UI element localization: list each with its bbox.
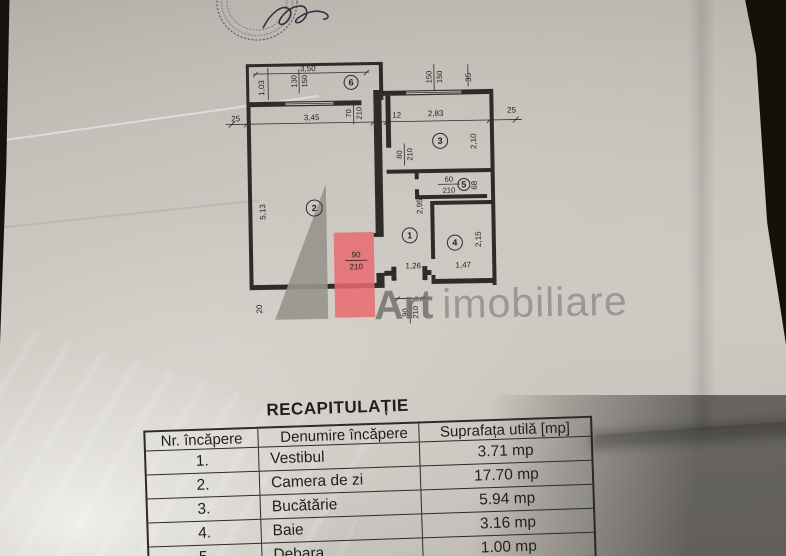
round-stamp-icon xyxy=(217,0,297,40)
photo-of-floor-plan-document: 3,50 1,03 130 150 70 210 25 3,45 12 2,83… xyxy=(0,0,786,556)
svg-text:90: 90 xyxy=(352,250,362,259)
watermark-brand-bold: Art xyxy=(374,281,434,328)
svg-text:210: 210 xyxy=(350,262,364,271)
label-kitchen-window-size: 150 150 xyxy=(424,64,444,90)
dim-wall-left: 25 xyxy=(231,114,241,123)
label-kitchen-door-size: 80 210 xyxy=(395,143,415,165)
svg-text:150: 150 xyxy=(435,71,444,84)
recapitulation-table: Nr. încăpere Denumire încăpere Suprafața… xyxy=(143,416,597,556)
agency-watermark: Artimobiliare xyxy=(374,281,628,326)
svg-text:1: 1 xyxy=(407,230,412,240)
svg-text:2: 2 xyxy=(312,203,317,213)
svg-text:5: 5 xyxy=(461,179,466,189)
svg-text:210: 210 xyxy=(355,107,364,120)
svg-text:150: 150 xyxy=(300,75,309,88)
svg-text:6: 6 xyxy=(348,77,353,87)
table-title: RECAPITULAȚIE xyxy=(232,395,443,422)
dim-wall-bottom: 20 xyxy=(255,304,264,314)
dim-closet-depth: 68 xyxy=(470,180,479,190)
balcony-window-icon xyxy=(285,101,333,107)
dim-living-width: 3,45 xyxy=(304,113,320,122)
svg-text:210: 210 xyxy=(405,148,414,161)
dim-bathroom-depth: 2,15 xyxy=(474,231,483,247)
svg-text:150: 150 xyxy=(424,71,433,84)
dim-balcony-depth: 1,03 xyxy=(257,80,266,96)
svg-text:4: 4 xyxy=(452,238,457,248)
svg-text:80: 80 xyxy=(395,150,404,158)
svg-text:3: 3 xyxy=(438,136,443,146)
kitchen-window-icon xyxy=(406,89,461,95)
svg-text:60: 60 xyxy=(445,175,453,184)
dim-kitchen-offset: 35 xyxy=(464,72,473,82)
stamp-and-signature xyxy=(205,0,375,58)
label-closet-door-size: 60 210 xyxy=(438,175,460,195)
dim-wall-right: 25 xyxy=(507,106,517,115)
dim-kitchen-width: 2,83 xyxy=(428,109,444,118)
door-highlight-rectangle xyxy=(334,232,375,318)
dim-vestibule-width: 1,26 xyxy=(405,261,421,270)
svg-text:210: 210 xyxy=(443,186,456,195)
dim-bathroom-width: 1,47 xyxy=(455,260,471,269)
dim-wall-mid: 12 xyxy=(392,111,402,120)
signature-icon xyxy=(263,6,328,28)
dim-vestibule-depth: 2,95 xyxy=(415,198,424,214)
svg-text:70: 70 xyxy=(344,109,353,117)
watermark-brand-light: imobiliare xyxy=(442,278,628,327)
recapitulation-section: RECAPITULAȚIE Nr. încăpere Denumire încă… xyxy=(140,381,617,556)
watermark-triangle xyxy=(273,184,328,320)
dim-balcony-width: 3,50 xyxy=(300,64,316,73)
svg-text:130: 130 xyxy=(289,75,298,88)
dim-living-depth: 5,13 xyxy=(258,204,267,220)
dim-kitchen-depth: 2,10 xyxy=(469,133,478,149)
label-balcony-door-size: 70 210 xyxy=(344,102,364,124)
